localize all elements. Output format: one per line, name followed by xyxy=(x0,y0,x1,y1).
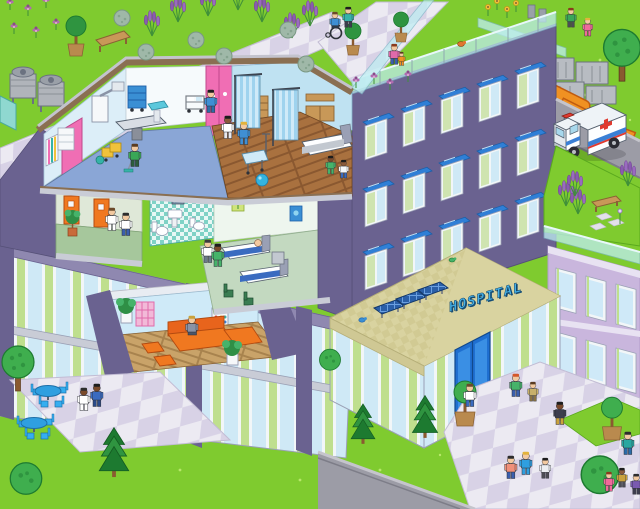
lilac-window xyxy=(616,348,636,393)
scene-canvas: HOSPITAL HOSPITAL xyxy=(0,0,640,509)
privacy-curtain[interactable] xyxy=(272,88,300,146)
hospital-scene: HOSPITAL HOSPITAL xyxy=(0,0,640,509)
exercise-ball xyxy=(256,174,268,186)
supply-cabinet xyxy=(58,128,74,150)
bedside-cabinet xyxy=(272,252,284,264)
ballbush-plant xyxy=(280,22,296,38)
door-orange[interactable] xyxy=(94,199,109,227)
corner-column xyxy=(0,232,14,420)
supply-cart-blue xyxy=(128,86,146,112)
hvac-unit xyxy=(38,75,64,112)
hvac-unit xyxy=(10,67,36,104)
tree-bush xyxy=(10,463,42,495)
tree-bush xyxy=(581,456,619,494)
lilac-window xyxy=(616,284,636,329)
patient-head xyxy=(255,240,262,247)
ballbush-plant xyxy=(298,56,314,72)
wall-art-pink xyxy=(136,302,154,326)
lilac-window xyxy=(586,340,606,385)
tree-bush xyxy=(320,349,341,370)
ballbush-plant xyxy=(138,44,154,60)
lilac-window xyxy=(586,276,606,321)
striped-wall-art xyxy=(46,134,58,166)
ballbush-plant xyxy=(114,10,130,26)
ballbush-plant xyxy=(188,32,204,48)
wall-picture-blue xyxy=(290,206,302,221)
privacy-curtain[interactable] xyxy=(234,74,262,134)
ballbush-plant xyxy=(216,48,232,64)
